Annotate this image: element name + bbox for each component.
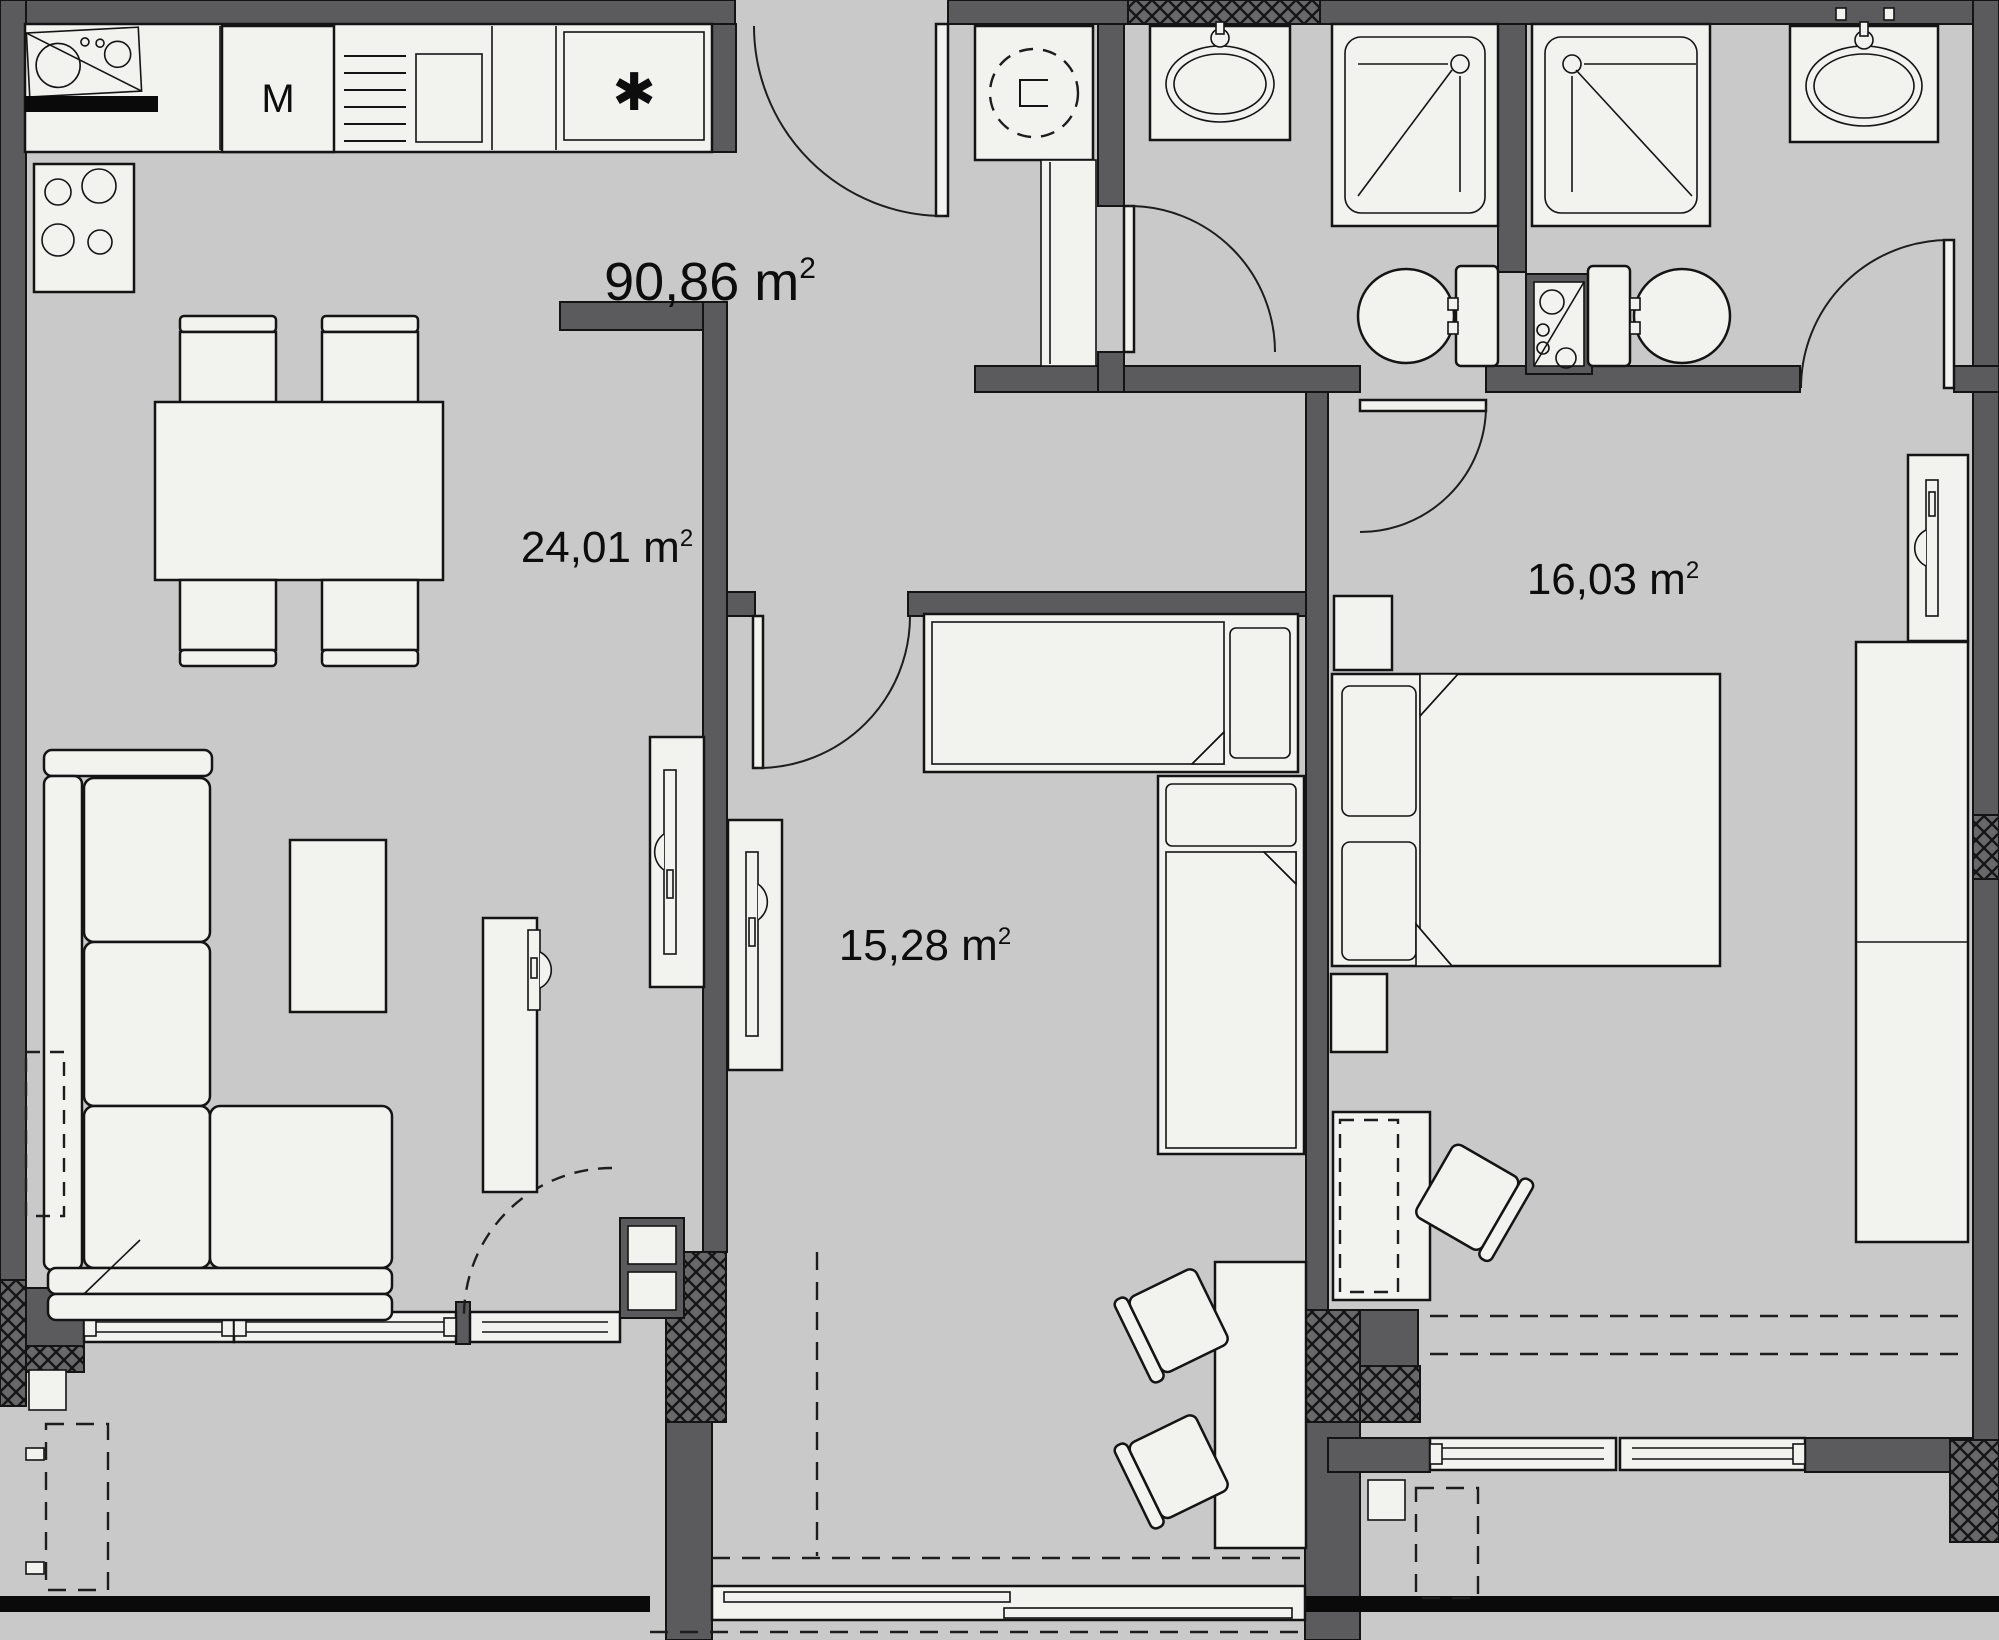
wall-bath-bottom-c bbox=[1954, 366, 1999, 392]
bathroom-right-door bbox=[1801, 240, 1954, 388]
wall-bedroom-window-left bbox=[1328, 1438, 1430, 1472]
bathroom-left-toilet bbox=[1358, 266, 1498, 366]
childroom-door bbox=[753, 616, 910, 768]
bedroom-window-2 bbox=[1620, 1438, 1805, 1470]
wall-kitchen-stub bbox=[710, 24, 736, 152]
bathroom-right-shower bbox=[1532, 24, 1710, 226]
bedroom-door bbox=[1360, 400, 1486, 532]
bathroom-left bbox=[1150, 22, 1498, 366]
balcony-left-box bbox=[29, 1370, 66, 1410]
hatch-left-wall bbox=[0, 1280, 26, 1406]
desk-bedroom bbox=[1333, 1112, 1430, 1300]
hatch-right-wall-bottom bbox=[1950, 1440, 1999, 1542]
wardrobe-bedroom bbox=[1856, 642, 1968, 1242]
wall-childroom-jamb bbox=[727, 592, 755, 616]
hall-closet bbox=[1041, 160, 1096, 366]
plumbing-shaft bbox=[1526, 274, 1592, 374]
balcony-right bbox=[1368, 1480, 1478, 1598]
nightstand-top bbox=[1334, 596, 1392, 670]
wall-bath-middle bbox=[1498, 24, 1526, 272]
label-total-area: 90,86 m2 bbox=[604, 252, 816, 312]
media-cabinet-living bbox=[650, 737, 704, 987]
single-bed-vertical bbox=[1158, 776, 1304, 1154]
wall-bath-bottom-a bbox=[1124, 366, 1360, 392]
bathroom-right bbox=[1532, 8, 1938, 366]
hatch-left-small bbox=[26, 1346, 84, 1372]
nightstand-bottom bbox=[1331, 974, 1387, 1052]
hatch-right-wall-mid bbox=[1973, 815, 1999, 879]
desk-child bbox=[1215, 1262, 1306, 1548]
bathroom-left-shower bbox=[1332, 24, 1498, 226]
washing-machine-label: M bbox=[261, 77, 294, 121]
hatch-column-right-a bbox=[1305, 1310, 1360, 1422]
childroom-sliding-window bbox=[712, 1586, 1305, 1620]
wall-top-left bbox=[0, 0, 735, 24]
dining-chair bbox=[180, 580, 276, 666]
wall-childroom-top bbox=[908, 592, 1306, 616]
dining-chair bbox=[322, 316, 418, 404]
label-living-area: 24,01 m2 bbox=[521, 523, 693, 572]
entrance-door bbox=[754, 24, 948, 216]
stove bbox=[34, 164, 134, 292]
kitchen-sink bbox=[26, 27, 141, 97]
freezer-star-icon: ✱ bbox=[612, 64, 656, 122]
living-balcony-door bbox=[464, 1168, 620, 1342]
wall-bath-left-lower bbox=[1098, 352, 1124, 392]
label-childroom-area: 15,28 m2 bbox=[839, 921, 1011, 970]
bathroom-left-door bbox=[1124, 206, 1275, 352]
label-bedroom-area: 16,03 m2 bbox=[1527, 555, 1699, 604]
cabinet-box bbox=[620, 1218, 684, 1318]
wall-bedroom-divider bbox=[1306, 392, 1328, 1312]
child-room bbox=[650, 614, 1306, 1632]
dining-chair bbox=[180, 316, 276, 404]
tv-cabinet-bedroom bbox=[1908, 455, 1968, 641]
balcony-right-planter bbox=[1416, 1488, 1478, 1598]
floor-plan-drawing: M ✱ bbox=[0, 0, 1999, 1640]
wall-column-right-b bbox=[1360, 1310, 1418, 1366]
dining-table bbox=[155, 402, 443, 580]
dining-chair bbox=[322, 580, 418, 666]
wall-living-divider bbox=[703, 302, 727, 1252]
hatch-top-wall bbox=[1128, 0, 1320, 24]
bathroom-right-sink bbox=[1790, 8, 1938, 142]
wall-bath-left-upper bbox=[1098, 24, 1124, 206]
bathroom-left-sink bbox=[1150, 22, 1290, 140]
corner-sofa bbox=[44, 750, 392, 1320]
wall-bedroom-window-right bbox=[1805, 1438, 1973, 1472]
balcony-right-box bbox=[1368, 1480, 1405, 1520]
balcony-left-planter bbox=[46, 1424, 108, 1590]
wall-left bbox=[0, 0, 26, 1296]
hatch-column-right-b bbox=[1360, 1366, 1420, 1422]
single-bed-horizontal bbox=[924, 614, 1298, 772]
kitchen-sink-edge bbox=[25, 96, 158, 112]
wall-right bbox=[1973, 0, 1999, 1502]
bathroom-right-toilet bbox=[1588, 266, 1730, 366]
coffee-table bbox=[290, 840, 386, 1012]
water-heater bbox=[975, 26, 1093, 160]
double-bed bbox=[1332, 674, 1720, 966]
slab-edge-right bbox=[1290, 1596, 1999, 1612]
floor-plan: M ✱ bbox=[0, 0, 1999, 1640]
media-cabinet-child bbox=[728, 820, 782, 1070]
tv-shelf-living bbox=[483, 918, 551, 1192]
washing-machine: M bbox=[222, 26, 334, 152]
bedroom-window-1 bbox=[1430, 1438, 1616, 1470]
dining-set bbox=[155, 316, 443, 666]
balcony-left bbox=[26, 1370, 108, 1590]
slab-edge-left bbox=[0, 1596, 650, 1612]
entry-area bbox=[975, 26, 1096, 366]
